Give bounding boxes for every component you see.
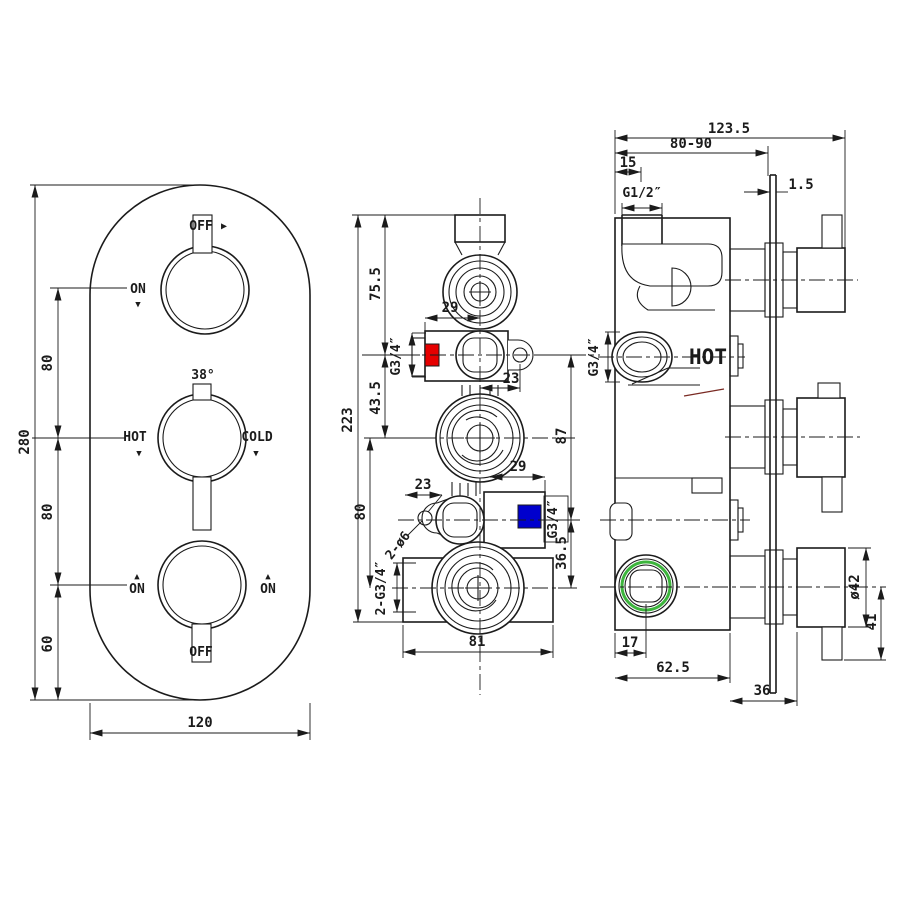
label-off-top: OFF bbox=[189, 219, 213, 234]
stem-bolt-top-tip bbox=[738, 344, 743, 368]
dim-dia42: ø42 bbox=[847, 574, 863, 599]
dim-80-90: 80-90 bbox=[670, 136, 712, 152]
handle-bottom-tab bbox=[822, 627, 842, 660]
dim-29-top: 29 bbox=[442, 300, 459, 316]
thread-g34-side: G3/4″ bbox=[587, 337, 602, 376]
dim-15: 15 bbox=[620, 155, 637, 171]
front-view: 280 80 80 60 120 OFF ▶ ON ▼ 38° HOT ▼ CO… bbox=[17, 185, 310, 740]
front-knob-middle-tab bbox=[193, 477, 211, 530]
cold-inlet-marker bbox=[518, 505, 541, 528]
stem-bolt-top bbox=[730, 336, 738, 376]
dim-41: 41 bbox=[864, 614, 880, 631]
thread-g34-top: G3/4″ bbox=[389, 336, 404, 375]
label-2-g34: 2-G3/4″ bbox=[374, 561, 389, 616]
dim-123-5: 123.5 bbox=[708, 121, 750, 137]
dim-75-5: 75.5 bbox=[368, 267, 384, 301]
triangle-down-icon: ▼ bbox=[253, 449, 259, 459]
side-handle-top bbox=[730, 215, 845, 317]
section-view: 223 75.5 43.5 80 29 G3/4″ 23 29 23 2-ø6 bbox=[340, 198, 600, 695]
dim-81: 81 bbox=[469, 634, 486, 650]
section-break-line bbox=[684, 389, 724, 396]
dim-36: 36 bbox=[754, 683, 771, 699]
label-off-bottom: OFF bbox=[189, 645, 213, 660]
body-left-lug bbox=[610, 503, 632, 540]
thread-g34-mid: G3/4″ bbox=[546, 499, 561, 538]
leader-2o6 bbox=[407, 521, 422, 536]
front-knob-middle-notch bbox=[193, 384, 211, 400]
dim-17: 17 bbox=[622, 635, 639, 651]
dim-80-lower: 80 bbox=[40, 504, 56, 521]
triangle-up-icon: ▲ bbox=[265, 572, 271, 582]
side-view: HOT bbox=[587, 121, 886, 706]
technical-drawing: 280 80 80 60 120 OFF ▶ ON ▼ 38° HOT ▼ CO… bbox=[0, 0, 900, 900]
dim-36-5: 36.5 bbox=[554, 536, 570, 570]
dim-62-5: 62.5 bbox=[656, 660, 690, 676]
triangle-down-icon: ▼ bbox=[135, 300, 141, 310]
side-outlet-elbow bbox=[622, 215, 722, 310]
dim-80-upper: 80 bbox=[40, 355, 56, 372]
label-hot: HOT bbox=[123, 430, 147, 445]
dim-280: 280 bbox=[17, 429, 33, 454]
drawing-canvas: 280 80 80 60 120 OFF ▶ ON ▼ 38° HOT ▼ CO… bbox=[0, 0, 900, 900]
handle-top-tab bbox=[822, 215, 842, 248]
mount-ear-left bbox=[422, 503, 437, 533]
front-knob-bottom bbox=[158, 541, 246, 662]
front-knob-middle bbox=[158, 384, 246, 530]
dim-60: 60 bbox=[40, 636, 56, 653]
body-detail-block bbox=[692, 478, 722, 493]
side-handle-middle bbox=[730, 383, 845, 512]
dim-80-section: 80 bbox=[353, 504, 369, 521]
triangle-up-icon: ▲ bbox=[134, 572, 140, 582]
dim-29-mid: 29 bbox=[510, 459, 527, 475]
dim-43-5: 43.5 bbox=[368, 381, 384, 415]
dim-23-top: 23 bbox=[503, 371, 520, 387]
dim-223: 223 bbox=[340, 407, 356, 432]
wall-plate bbox=[770, 175, 776, 693]
handle-mid-tab bbox=[822, 477, 842, 512]
label-on-bottom-left: ON bbox=[129, 582, 145, 597]
label-cold: COLD bbox=[241, 430, 272, 445]
dim-23-mid: 23 bbox=[415, 477, 432, 493]
label-on-left: ON bbox=[130, 282, 146, 297]
handle-mid-notch bbox=[818, 383, 840, 398]
dim-87: 87 bbox=[554, 428, 570, 445]
label-38deg: 38° bbox=[191, 368, 214, 383]
arrow-right-icon: ▶ bbox=[221, 221, 227, 232]
side-handle-bottom bbox=[730, 548, 845, 660]
dim-120: 120 bbox=[187, 715, 212, 731]
label-on-bottom-right: ON bbox=[260, 582, 276, 597]
triangle-down-icon: ▼ bbox=[136, 449, 142, 459]
thread-g12: G1/2″ bbox=[622, 186, 661, 201]
dim-1-5: 1.5 bbox=[788, 177, 813, 193]
